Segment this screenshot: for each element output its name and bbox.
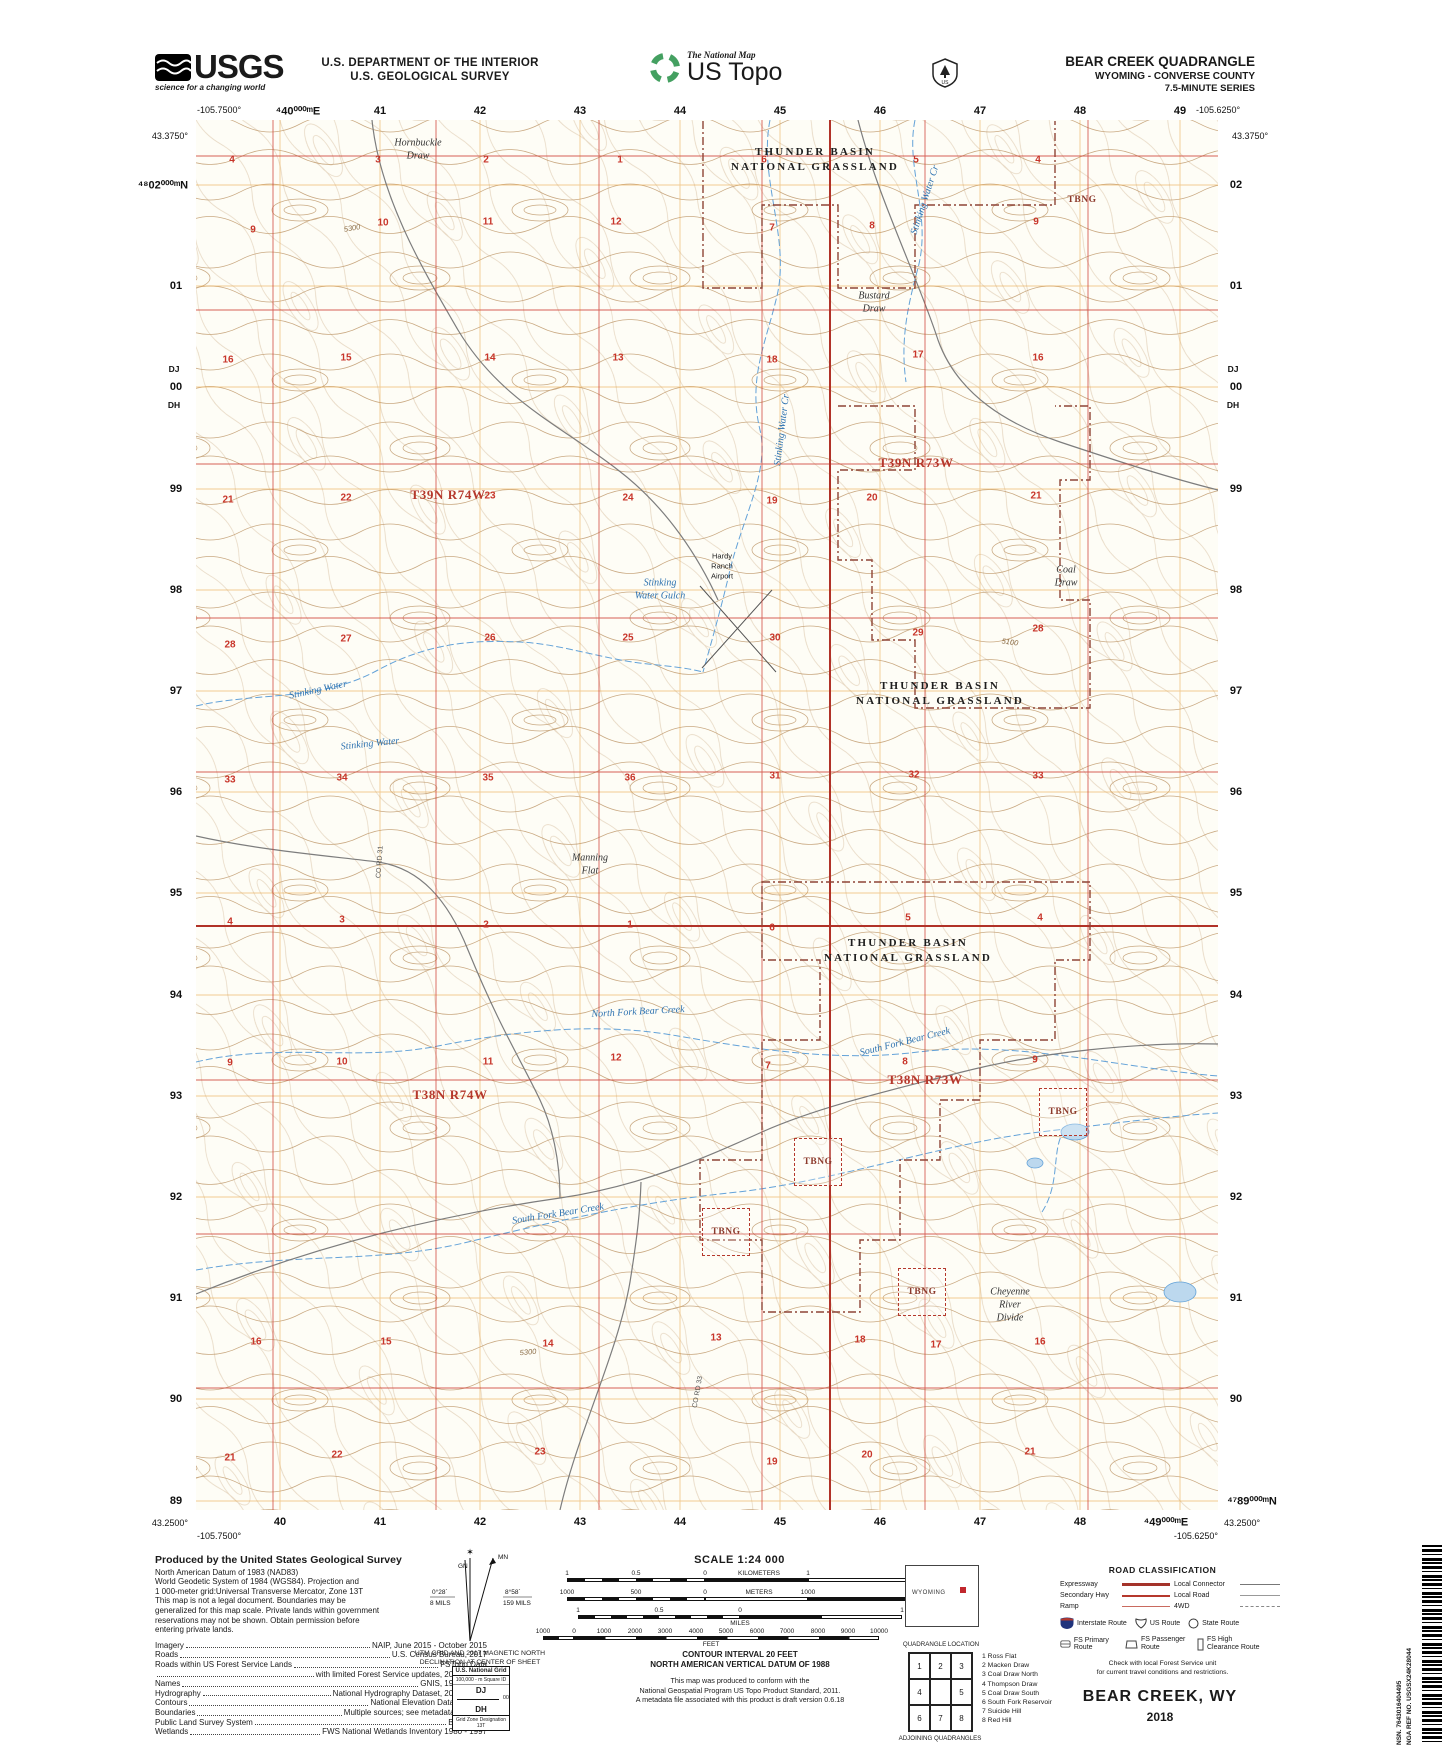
grid-northing-label: 98	[1230, 584, 1242, 596]
adjoining-quad-cell: 2	[930, 1653, 951, 1679]
grid-northing-label: 01	[170, 280, 182, 292]
forest-service-note: Check with local Forest Service unit for…	[1060, 1660, 1265, 1678]
corner-lat-top-right: 43.3750°	[1232, 131, 1268, 141]
us-route-shield-icon	[1135, 1618, 1147, 1629]
credit-row: with limited Forest Service updates, 201…	[155, 1670, 487, 1680]
nga-ref-number: NGA REF NO. USGSX24K28044	[1406, 1545, 1413, 1745]
miles-unit: MILES	[730, 1620, 750, 1627]
grid-easting-label: 45	[774, 105, 786, 117]
adjoining-quad-cell: 5	[951, 1679, 972, 1705]
legend-fs-passenger: FS Passenger Route	[1141, 1636, 1189, 1652]
corner-lat-bottom-right: 43.2500°	[1224, 1518, 1260, 1528]
corner-lat-bottom-left: 43.2500°	[130, 1518, 188, 1528]
usng-square-id: 100,000 - m Square ID	[453, 1676, 509, 1685]
grid-northing-label: 96	[1230, 786, 1242, 798]
state-name: WYOMING	[912, 1590, 946, 1596]
ustopo-logo: The National Map US Topo	[648, 50, 782, 85]
scale-bar-kilometers: 10.50KILOMETERS12	[567, 1570, 912, 1586]
grid-northing-label: 93	[1230, 1090, 1242, 1102]
dept-line1: U.S. DEPARTMENT OF THE INTERIOR	[290, 56, 570, 70]
grid-easting-label: 41	[374, 105, 386, 117]
sheet-title: BEAR CREEK, WY	[1040, 1688, 1280, 1706]
usng-title: U.S. National Grid	[453, 1667, 509, 1676]
road-class-title: ROAD CLASSIFICATION	[1060, 1565, 1265, 1575]
usgs-logo: USGS science for a changing world	[155, 52, 284, 92]
legend-ramp: Ramp	[1060, 1603, 1118, 1610]
adjoining-quads-caption: ADJOINING QUADRANGLES	[880, 1735, 1000, 1742]
usng-box: U.S. National Grid 100,000 - m Square ID…	[452, 1666, 510, 1731]
credit-row: Boundaries Multiple sources; see metadat…	[155, 1708, 487, 1718]
adjoining-quad-cell: 1	[909, 1653, 930, 1679]
legend-4wd: 4WD	[1174, 1603, 1236, 1610]
4wd-line-sample	[1240, 1606, 1280, 1607]
credit-row: Public Land Survey System BLM, 2017	[155, 1718, 487, 1728]
svg-text:8°58´: 8°58´	[505, 1588, 521, 1596]
grid-northing-label: 90	[1230, 1393, 1242, 1405]
grid-northing-label: 95	[1230, 887, 1242, 899]
grid-northing-label: ⁴⁸02⁰⁰⁰ᵐN	[138, 179, 188, 192]
scale-bar-feet: 1000010002000300040005000600070008000900…	[543, 1628, 879, 1644]
grid-easting-label: 41	[374, 1516, 386, 1528]
quad-title: BEAR CREEK QUADRANGLE	[955, 54, 1255, 70]
adjoining-quad-cell: 3	[951, 1653, 972, 1679]
corner-lon-bottom-left: -105.7500°	[197, 1531, 241, 1541]
grid-northing-label: 90	[170, 1393, 182, 1405]
usng-dh: DH	[453, 1705, 509, 1714]
usgs-wave-icon	[155, 54, 191, 81]
svg-text:8 MILS: 8 MILS	[430, 1600, 451, 1607]
grid-easting-label: 44	[674, 1516, 686, 1528]
fs-high-clearance-icon	[1197, 1638, 1204, 1651]
usng-square-id-label: DH	[1227, 400, 1239, 410]
quad-location-dot	[960, 1587, 966, 1593]
grid-northing-label: 94	[1230, 989, 1242, 1001]
scale-bar-meters: 10005000METERS10002000	[567, 1589, 912, 1605]
ramp-line-sample	[1122, 1606, 1170, 1607]
corner-lon-top-left: -105.7500°	[197, 105, 241, 115]
credit-row: Wetlands FWS National Wetlands Inventory…	[155, 1727, 487, 1737]
feet-unit: FEET	[703, 1641, 720, 1648]
grid-northing-label: 97	[170, 685, 182, 697]
adjoining-quad-cell: 4	[909, 1679, 930, 1705]
grid-easting-label: 46	[874, 1516, 886, 1528]
barcode	[1422, 1545, 1442, 1743]
grid-northing-label: 02	[1230, 179, 1242, 191]
svg-text:0°28´: 0°28´	[432, 1588, 448, 1596]
grid-northing-label: 95	[170, 887, 182, 899]
contour-interval-notes: CONTOUR INTERVAL 20 FEET NORTH AMERICAN …	[540, 1650, 940, 1670]
legend-expressway: Expressway	[1060, 1581, 1118, 1588]
grid-northing-label: 92	[1230, 1191, 1242, 1203]
quad-subtitle2: 7.5-MINUTE SERIES	[955, 83, 1255, 95]
grid-northing-label: 92	[170, 1191, 182, 1203]
svg-text:US: US	[942, 80, 950, 86]
svg-text:✶: ✶	[466, 1547, 474, 1557]
usng-00: 00	[503, 1695, 509, 1701]
secondary-line-sample	[1122, 1595, 1170, 1597]
grid-easting-label: 48	[1074, 1516, 1086, 1528]
map-graphics	[196, 120, 1218, 1510]
grid-easting-label: 43	[574, 1516, 586, 1528]
contour-lines	[196, 120, 1218, 1510]
sheet-year: 2018	[1040, 1710, 1280, 1724]
grid-northing-label: 94	[170, 989, 182, 1001]
usng-square-id-label: DJ	[169, 364, 180, 374]
grid-easting-label: 47	[974, 105, 986, 117]
local-connector-line-sample	[1240, 1584, 1280, 1585]
legend-secondary-hwy: Secondary Hwy	[1060, 1592, 1118, 1599]
grid-northing-label: 97	[1230, 685, 1242, 697]
usgs-tagline: science for a changing world	[155, 83, 284, 92]
grid-easting-label: ⁴49⁰⁰⁰ᵐE	[1144, 1516, 1188, 1529]
credit-row: Names GNIS, 1979 - 1994	[155, 1679, 487, 1689]
adjoining-quad-cell: 8	[951, 1705, 972, 1731]
interstate-shield-icon	[1060, 1617, 1074, 1629]
grid-northing-label: 99	[170, 483, 182, 495]
legend-fs-primary: FS Primary Route	[1074, 1637, 1117, 1651]
conformance-note: This map was produced to conform with th…	[540, 1676, 940, 1705]
quadrangle-title-block: BEAR CREEK QUADRANGLE WYOMING - CONVERSE…	[955, 54, 1255, 95]
svg-text:MN: MN	[498, 1554, 508, 1561]
legend-us-route: US Route	[1150, 1620, 1180, 1627]
usgs-topo-sheet: USGS science for a changing world U.S. D…	[0, 0, 1445, 1746]
grid-northing-label: 93	[170, 1090, 182, 1102]
grid-easting-label: 49	[1174, 105, 1186, 117]
legend-interstate: Interstate Route	[1077, 1620, 1127, 1627]
quad-subtitle1: WYOMING - CONVERSE COUNTY	[955, 70, 1255, 83]
grid-northing-label: 99	[1230, 483, 1242, 495]
grid-easting-label: 48	[1074, 105, 1086, 117]
national-map-icon	[648, 51, 682, 85]
local-road-line-sample	[1240, 1595, 1280, 1596]
usgs-logo-text: USGS	[194, 52, 284, 82]
dept-line2: U.S. GEOLOGICAL SURVEY	[290, 70, 570, 84]
grid-northing-label: 98	[170, 584, 182, 596]
grid-easting-label: 44	[674, 105, 686, 117]
grid-northing-label: 01	[1230, 280, 1242, 292]
legend-fs-high: FS High Clearance Route	[1207, 1636, 1265, 1652]
state-route-icon	[1188, 1618, 1199, 1629]
scale-bar-miles: 10.501 MILES	[578, 1607, 902, 1623]
grid-northing-label: 89	[170, 1495, 182, 1507]
adjoining-quad-cell: 6	[909, 1705, 930, 1731]
grid-northing-label: 91	[1230, 1292, 1242, 1304]
usng-zone: 13T	[454, 1723, 508, 1729]
credit-row: Hydrography National Hydrography Dataset…	[155, 1689, 487, 1699]
corner-lon-bottom-right: -105.6250°	[1145, 1531, 1218, 1541]
corner-lat-top-left: 43.3750°	[130, 131, 188, 141]
nsn-number: NSN. 7643016404495	[1396, 1545, 1403, 1745]
state-locator: WYOMING	[905, 1565, 979, 1627]
grid-easting-label: 40	[274, 1516, 286, 1528]
grid-northing-label: 00	[170, 381, 182, 393]
grid-easting-label: ⁴40⁰⁰⁰ᵐE	[276, 105, 320, 118]
adjoining-quad-cell: 7	[930, 1705, 951, 1731]
legend-local-road: Local Road	[1174, 1592, 1236, 1599]
usng-square-id-label: DH	[168, 400, 180, 410]
grid-northing-label: 96	[170, 786, 182, 798]
grid-northing-label: 00	[1230, 381, 1242, 393]
legend-local-connector: Local Connector	[1174, 1581, 1236, 1588]
department-header: U.S. DEPARTMENT OF THE INTERIOR U.S. GEO…	[290, 56, 570, 84]
usng-dj: DJ	[453, 1686, 509, 1695]
grid-easting-label: 47	[974, 1516, 986, 1528]
quad-location-caption: QUADRANGLE LOCATION	[880, 1641, 1002, 1648]
grid-easting-label: 45	[774, 1516, 786, 1528]
svg-text:GN: GN	[458, 1563, 468, 1570]
fs-passenger-icon	[1125, 1640, 1138, 1649]
grid-easting-label: 46	[874, 105, 886, 117]
svg-text:159 MILS: 159 MILS	[503, 1600, 531, 1607]
scale-title: SCALE 1:24 000	[567, 1554, 912, 1566]
grid-easting-label: 43	[574, 105, 586, 117]
usng-square-id-label: DJ	[1228, 364, 1239, 374]
road-classification-legend: ROAD CLASSIFICATION Expressway Local Con…	[1060, 1565, 1265, 1678]
adjoining-quad-cell	[930, 1679, 951, 1705]
legend-state-route: State Route	[1202, 1620, 1239, 1627]
fs-primary-icon	[1060, 1639, 1071, 1649]
adjoining-quads-grid: 12345678	[908, 1652, 973, 1732]
declination-diagram: ✶ GN MN 0°28´ 8 MILS 8°58´ 159 MILS	[410, 1546, 550, 1646]
ustopo-brand: US Topo	[687, 60, 782, 85]
credit-row: Contours National Elevation Dataset, 200…	[155, 1698, 487, 1708]
grid-northing-label: 91	[170, 1292, 182, 1304]
grid-easting-label: 42	[474, 105, 486, 117]
expressway-line-sample	[1122, 1583, 1170, 1586]
corner-lon-top-right: -105.6250°	[1196, 105, 1240, 115]
grid-easting-label: 42	[474, 1516, 486, 1528]
grid-northing-label: ⁴⁷89⁰⁰⁰ᵐN	[1227, 1495, 1277, 1508]
